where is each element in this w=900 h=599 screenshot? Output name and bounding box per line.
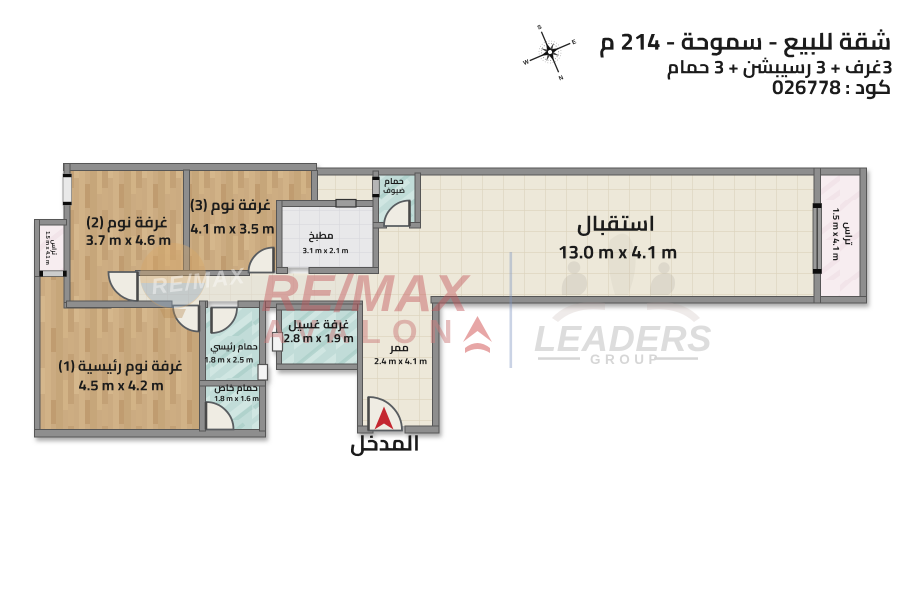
svg-text:W: W <box>523 59 531 67</box>
svg-text:1.5 m x 4.1 m: 1.5 m x 4.1 m <box>44 231 50 265</box>
svg-text:N: N <box>558 75 564 82</box>
svg-text:AVALON: AVALON <box>263 313 463 350</box>
svg-text:GROUP: GROUP <box>590 352 662 367</box>
svg-text:E: E <box>571 39 577 46</box>
svg-text:S: S <box>537 25 543 32</box>
